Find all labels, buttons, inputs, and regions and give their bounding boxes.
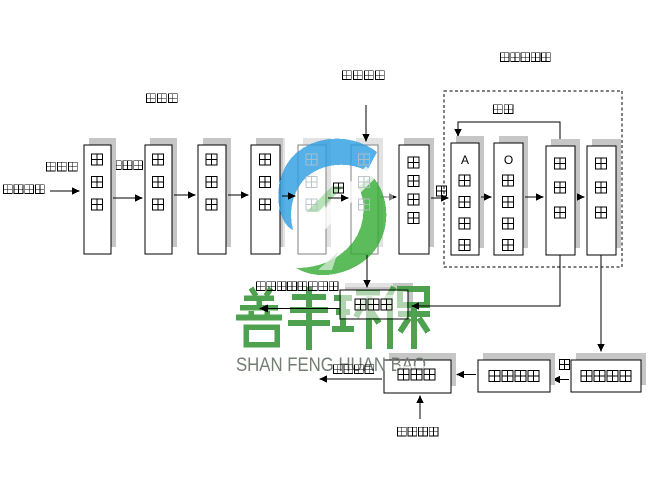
- svg-text:O: O: [504, 153, 513, 167]
- svg-text:A: A: [461, 153, 469, 167]
